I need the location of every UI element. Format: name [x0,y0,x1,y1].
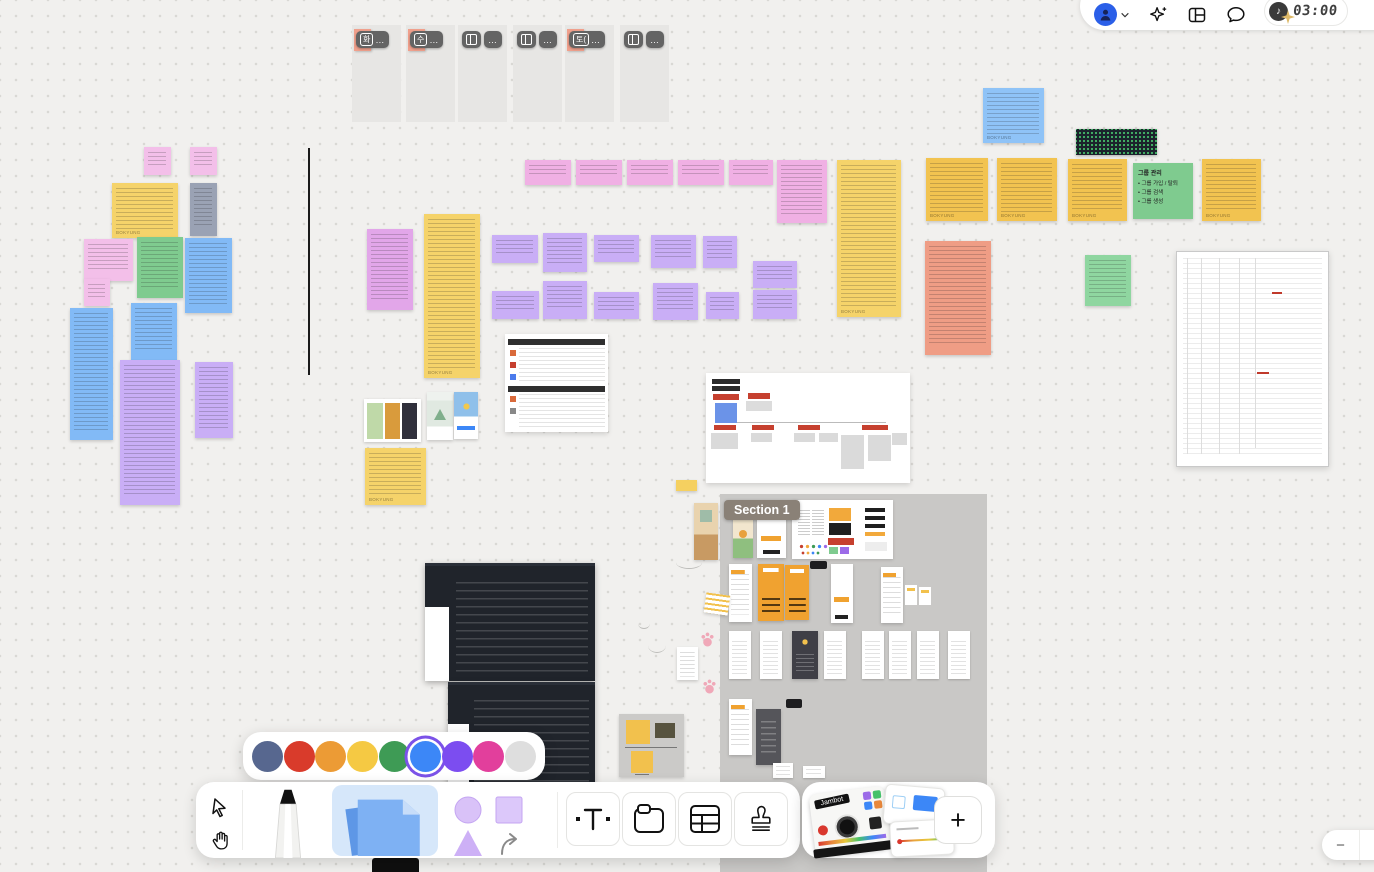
layout-columns-icon [628,34,639,45]
overflow-dots: … [429,37,439,43]
section-label-pill[interactable] [517,31,536,48]
meme-stickers-card[interactable] [619,714,684,777]
sticky-note[interactable] [703,236,737,268]
overflow-dots: … [591,37,601,43]
timer-display: 03:00 [1292,3,1338,19]
color-swatch[interactable] [347,741,378,772]
github-graph-image[interactable] [1076,129,1157,155]
mini-cards[interactable] [905,585,933,607]
overflow-dots: … [650,37,660,43]
table-tool-button[interactable] [678,792,732,846]
mobile-mockup[interactable] [760,631,782,679]
zoom-out-button[interactable]: − [1322,836,1359,855]
text-tool-button[interactable] [566,792,620,846]
zoom-control: − [1322,830,1374,860]
sticky-note[interactable] [753,261,797,288]
pen-scribble[interactable] [648,638,666,653]
color-swatch-selected[interactable] [410,741,441,772]
mobile-mockup[interactable] [729,631,751,679]
sticky-note[interactable] [120,360,180,505]
toolbar-divider [557,792,558,848]
mobile-mockup[interactable] [785,565,809,620]
pen-scribble[interactable] [638,618,650,629]
mobile-mockup[interactable] [862,631,884,679]
sticky-note[interactable] [651,235,696,268]
templates-button[interactable] [1186,4,1208,26]
color-swatch[interactable] [442,741,473,772]
collapsed-section-column[interactable]: 화… [352,25,401,122]
figjam-canvas[interactable]: BOKYUNGBOKYUNGBOKYUNGBOKYUNGBOKYUNGBOKYU… [0,0,1374,872]
section-label[interactable]: Section 1 [724,500,800,520]
sticky-color-picker [243,732,545,780]
overflow-dots: … [488,37,498,43]
sticky-note[interactable] [729,160,773,185]
comments-button[interactable] [1225,4,1247,26]
account-menu-button[interactable] [1094,3,1130,26]
sticky-note[interactable] [492,235,538,263]
sticky-note[interactable]: BOKYUNG [997,158,1057,221]
mobile-mockup[interactable] [729,564,752,622]
sticky-note[interactable]: BOKYUNG [983,88,1044,143]
marker-tool-button[interactable] [252,788,324,858]
paw-stamp[interactable] [702,679,717,694]
jambot-lens [835,815,858,838]
jambot-buttons [863,790,883,810]
sticky-note[interactable] [753,290,797,319]
sticky-note[interactable] [84,279,110,306]
avatar [1094,3,1117,26]
jambot-label: Jambot [814,794,850,810]
person-icon [1098,7,1113,22]
sticky-note[interactable] [190,183,217,236]
sticky-note[interactable] [594,235,639,262]
section-label-pill[interactable]: … [646,31,664,48]
style-guide-card[interactable] [792,500,893,559]
section-label-pill[interactable] [462,31,481,48]
tool-drawer-handle[interactable] [372,858,419,872]
jambot-viewfinder [869,816,882,829]
section-label-pill[interactable]: … [539,31,557,48]
mobile-mockup[interactable] [881,567,903,623]
mobile-mockup[interactable] [917,631,939,679]
select-tool-button[interactable] [204,794,236,822]
sticky-note[interactable] [543,281,587,319]
paw-stamp[interactable] [700,632,715,647]
sticky-note[interactable] [70,308,113,440]
mobile-mockup[interactable] [756,709,781,765]
sticky-note[interactable]: BOKYUNG [365,448,426,505]
sticky-note-icon [342,794,428,856]
chat-bubble-icon [1226,5,1246,25]
group-note[interactable]: 그룹 관리• 그룹 가입 / 탈퇴• 그룹 검색• 그룹 생성 [1133,163,1193,219]
sticky-note[interactable] [492,291,539,319]
text-tool-icon [576,804,610,834]
hand-icon [210,829,231,851]
sticky-note[interactable]: BOKYUNG [1202,159,1261,221]
table-tool-icon [688,803,722,835]
collapsed-section-column[interactable]: 수… [406,25,455,122]
section-label-pill[interactable]: 토(… [569,31,605,48]
sticky-note[interactable] [195,362,233,438]
app-screenshot[interactable] [454,392,478,439]
section-label-pill[interactable]: … [484,31,502,48]
shapes-icon [446,794,552,856]
app-screenshot[interactable] [427,392,453,440]
sticky-note[interactable] [676,480,697,491]
shapes-tool-button[interactable] [446,794,552,856]
mobile-mockup[interactable] [758,564,784,621]
color-swatch[interactable] [505,741,536,772]
music-avatar: ♪ [1269,2,1288,21]
collapsed-section-column[interactable]: … [513,25,562,122]
sticky-note[interactable] [137,237,183,298]
board: BOKYUNGBOKYUNGBOKYUNGBOKYUNGBOKYUNGBOKYU… [0,0,1374,872]
music-timer-widget[interactable]: ♪ 03:00 [1264,0,1348,26]
sticky-note[interactable] [144,147,171,175]
label-chip[interactable] [786,699,802,708]
sticky-note[interactable]: BOKYUNG [424,214,480,378]
jambot-widget[interactable]: Jambot [809,786,892,857]
sticky-note[interactable] [185,238,232,313]
sticky-note[interactable] [925,241,991,355]
sticky-note[interactable]: BOKYUNG [112,183,178,238]
mobile-mockup[interactable] [773,763,793,778]
section-label-pill[interactable] [624,31,643,48]
sticky-note[interactable] [576,160,622,185]
top-right-bar: ♪ 03:00 [1080,0,1374,30]
stamp-tool-button[interactable] [734,792,788,846]
layout-columns-icon [521,34,532,45]
jambot-shutter [817,825,828,836]
add-widget-button[interactable]: + [934,796,982,844]
section-label-text: 화 [360,33,373,46]
color-swatch[interactable] [379,741,410,772]
mobile-mockup[interactable] [803,766,825,778]
sticky-note[interactable] [706,292,739,319]
toolbar-divider [242,790,243,850]
sticky-note[interactable] [594,292,639,319]
sticker-image[interactable] [704,592,731,615]
sticky-note[interactable] [653,283,698,320]
section-label-text: 토( [573,33,589,46]
hand-tool-button[interactable] [204,826,236,854]
pen-scribble[interactable] [676,556,702,569]
app-dark-screenshot[interactable] [425,563,595,681]
sticky-note[interactable] [1085,255,1131,306]
sticky-note[interactable] [525,160,571,185]
mobile-mockup[interactable] [792,631,818,679]
sticky-note-tool-button[interactable] [332,785,438,856]
mobile-mockup[interactable] [824,631,846,679]
mini-note[interactable] [677,647,698,680]
collapsed-section-column[interactable]: … [458,25,507,122]
drawn-line[interactable] [308,148,310,375]
sticky-note[interactable] [543,233,587,272]
section-tool-button[interactable] [622,792,676,846]
sparkle-icon [1148,5,1168,25]
app-screenshots[interactable] [364,399,421,442]
section-label-pill[interactable]: 수… [410,31,443,48]
sticky-note[interactable] [627,160,673,185]
sticky-note[interactable] [678,160,724,185]
overflow-dots: … [543,37,553,43]
sticky-note[interactable] [777,160,827,223]
color-swatch[interactable] [284,741,315,772]
layout-columns-icon [466,34,477,45]
collapsed-section-column[interactable]: 토(… [565,25,614,122]
sticky-note[interactable]: BOKYUNG [926,158,988,221]
stamp-icon [745,803,777,835]
sticky-note[interactable] [367,229,413,310]
sticky-note[interactable] [84,239,133,281]
overflow-dots: … [375,37,385,43]
section-label-text: 수 [414,33,427,46]
mobile-mockup[interactable] [729,699,752,755]
sticky-note[interactable] [131,303,177,361]
mobile-mockup[interactable] [948,631,970,679]
section-label-pill[interactable]: 화… [356,31,389,48]
sticky-note[interactable] [190,147,217,175]
mobile-mockup[interactable] [831,564,853,623]
marker-icon [258,788,318,858]
cursor-icon [210,797,230,819]
template-grid-icon [1187,5,1207,25]
color-swatch[interactable] [473,741,504,772]
ia-flowchart-image[interactable] [706,373,910,483]
spec-document-page[interactable] [1176,251,1329,467]
mobile-mockup[interactable] [889,631,911,679]
sticky-note[interactable]: BOKYUNG [1068,159,1127,221]
sticky-note[interactable]: BOKYUNG [837,160,901,317]
color-swatch[interactable] [315,741,346,772]
label-chip[interactable] [810,561,827,569]
color-swatch[interactable] [252,741,283,772]
illustration-image[interactable] [694,503,718,560]
comparison-table-screenshot[interactable] [505,334,608,432]
zoom-divider [1359,830,1360,860]
ai-sparkle-button[interactable] [1147,4,1169,26]
section-tool-icon [632,803,666,835]
chevron-down-icon [1120,10,1130,20]
collapsed-section-column[interactable]: … [620,25,669,122]
